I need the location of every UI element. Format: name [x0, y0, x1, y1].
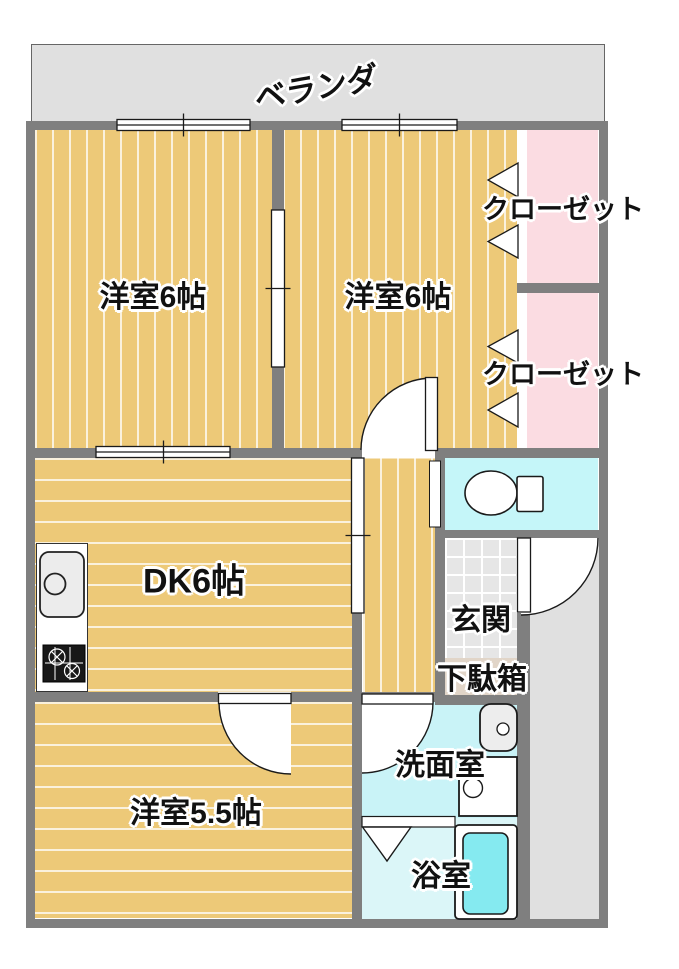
kitchen-counter	[36, 543, 88, 692]
bedroom3-label: 洋室5.5帖	[130, 788, 262, 832]
wall-middle	[26, 448, 608, 458]
toilet-room-floor	[445, 458, 598, 530]
closet1-label: クローゼット	[482, 188, 644, 227]
washroom-label: 洗面室	[395, 740, 485, 784]
wall-washroom-left	[352, 702, 362, 919]
wall-closet-divider	[517, 283, 599, 293]
closet2-label: クローゼット	[482, 353, 644, 392]
dk-label: DK6帖	[143, 554, 245, 603]
hallway-floor	[363, 458, 435, 692]
wall-toilet-bottom	[435, 530, 599, 538]
wall-left	[26, 121, 35, 928]
getabako-label: 下駄箱	[437, 654, 527, 698]
wall-dk-bottom	[26, 692, 352, 702]
wall-hallway-left	[352, 613, 362, 702]
wall-right	[599, 121, 608, 928]
wall-bottom	[26, 919, 608, 928]
wall-hallway-bottom	[352, 692, 435, 702]
bedroom2-label: 洋室6帖	[345, 272, 452, 316]
floor-plan: ベランダ 洋室6帖 洋室6帖 クローゼット クローゼット DK6帖 洋室5.5帖…	[0, 0, 679, 969]
genkan-label: 玄関	[451, 595, 511, 639]
bathroom-label: 浴室	[411, 851, 471, 895]
exterior-walkway	[530, 538, 599, 919]
wall-top	[26, 121, 608, 130]
wall-between-bedrooms	[272, 130, 284, 448]
bedroom1-label: 洋室6帖	[100, 272, 207, 316]
